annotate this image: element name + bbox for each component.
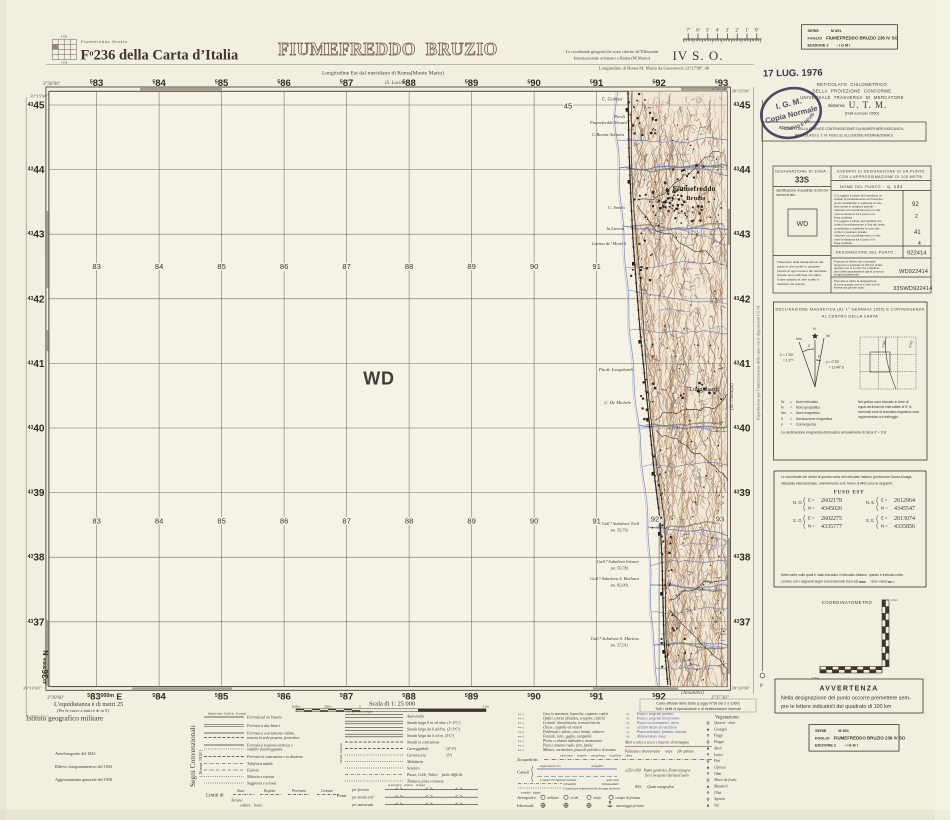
svg-text:84: 84 (155, 517, 163, 526)
svg-text:Le coordinate geografiche sono: Le coordinate geografiche sono riferite … (566, 49, 659, 54)
svg-text:linea suddetta :: linea suddetta : (834, 241, 854, 245)
svg-text:Rilievo fotogrammetrico del 19: Rilievo fotogrammetrico del 1943 (55, 764, 112, 769)
svg-text:Idroscali:: Idroscali: (517, 803, 534, 808)
svg-text:Nord geografico: Nord geografico (796, 406, 820, 410)
svg-text:E =: E = (881, 516, 888, 521)
svg-text:FIUMEFREDDO BRUZIO: FIUMEFREDDO BRUZIO (278, 39, 498, 59)
svg-text:ed altro mezzo di estrazione: ed altro mezzo di estrazione (637, 726, 678, 730)
svg-text:Alberi da frutto: Alberi da frutto (713, 778, 737, 782)
svg-text:FUSO EST: FUSO EST (834, 491, 864, 496)
svg-text:Nel grafico sono tracciate le: Nel grafico sono tracciate le linee di (858, 400, 909, 404)
svg-text:89: 89 (467, 517, 475, 526)
svg-text:=: = (790, 417, 792, 421)
svg-text:1 Km: 1 Km (812, 676, 820, 680)
svg-text:3°37′30″: 3°37′30″ (712, 87, 731, 92)
svg-text:rotabile fiancheggiante: rotabile fiancheggiante (247, 748, 283, 752)
svg-text:Condutture importanti di energ: Condutture importanti di energia elettri… (563, 787, 620, 791)
svg-text:inequivocabilmente :: inequivocabilmente : (834, 273, 861, 277)
svg-text:91: 91 (592, 262, 600, 271)
svg-text:586: 586 (277, 692, 290, 703)
svg-text:Muri a calce a secco e macerie: Muri a calce a secco e macerie di montag… (624, 741, 689, 745)
svg-text:γ = 0°39′: γ = 0°39′ (826, 360, 840, 364)
svg-text:33S: 33S (795, 176, 810, 185)
svg-text:=: = (790, 422, 792, 426)
svg-text:(Per le curve a tratti è di m: (Per le curve a tratti è di m 5) (57, 708, 109, 713)
svg-text:Abeti: Abeti (713, 746, 722, 750)
svg-text:AL CENTRO DELLA CARTA: AL CENTRO DELLA CARTA (822, 315, 879, 319)
svg-text:▪▫▪ ◇: ▪▫▪ ◇ (518, 726, 525, 730)
svg-text:Terreno:: Terreno: (231, 799, 243, 803)
svg-text:Le coordinate dei vertici di q: Le coordinate dei vertici di questa cart… (781, 475, 912, 479)
svg-text:FOGLIOFIUMEFREDDO BRUZIO 236 I: FOGLIOFIUMEFREDDO BRUZIO 236 IV SO (815, 736, 906, 741)
svg-text:83: 83 (92, 262, 100, 271)
svg-text:87: 87 (342, 517, 350, 526)
svg-text:δ: δ (781, 417, 783, 421)
svg-text:misto: misto (594, 796, 602, 800)
svg-text:Pta di: Pta di (613, 114, 625, 119)
svg-text:(Amantea): (Amantea) (681, 689, 704, 696)
svg-text:592: 592 (652, 78, 665, 89)
svg-text:○◎: ○◎ (625, 721, 630, 725)
svg-text:Trascurare nella designazione: Trascurare nella designazione del (777, 260, 824, 264)
svg-text:590: 590 (527, 692, 540, 703)
svg-text:▪▫▪ ◇: ▪▫▪ ◇ (518, 721, 525, 725)
svg-text:Limiti di: Limiti di (206, 794, 224, 799)
svg-text:88: 88 (405, 517, 413, 526)
svg-text:civile: civile (571, 796, 579, 800)
svg-text:lometri di lato :: lometri di lato : (776, 193, 797, 197)
svg-text:587: 587 (340, 692, 353, 703)
svg-text:589: 589 (465, 692, 478, 703)
svg-text:▪▫▪ ◇: ▪▫▪ ◇ (518, 735, 525, 739)
svg-text:39°15′00″: 39°15′00″ (30, 94, 49, 99)
svg-text:4335856: 4335856 (894, 524, 915, 530)
svg-text:C. Snello: C. Snello (608, 205, 626, 210)
svg-text:Strada larga 8 m. ed oltre (1ª: Strada larga 8 m. ed oltre (1ª-2ªCª) (407, 721, 461, 725)
svg-text:Declinazione magnetica: Declinazione magnetica (796, 417, 832, 421)
svg-text:585: 585 (215, 78, 229, 89)
svg-text:Olivi: Olivi (714, 791, 721, 795)
svg-text:Riproduzione per l’autorizzazi: Riproduzione per l’autorizzazione della … (756, 305, 761, 420)
svg-text:E =: E = (808, 498, 815, 503)
svg-text:Sentiero: Sentiero (407, 767, 420, 771)
svg-text:4′: 4′ (716, 29, 720, 34)
svg-text:Stato: Stato (237, 789, 245, 793)
svg-text:39°10′00″: 39°10′00″ (732, 686, 751, 691)
svg-text:Slittovia e rotovia: Slittovia e rotovia (247, 775, 274, 779)
svg-text:=: = (790, 411, 792, 415)
svg-text:Canali: Canali (517, 770, 530, 775)
svg-text:Pozzo e sorgente perenne: Pozzo e sorgente perenne (636, 712, 674, 716)
svg-text:2′: 2′ (735, 29, 739, 34)
svg-text:per strada ord.ª: per strada ord.ª (351, 796, 376, 800)
svg-text:C. De Michele: C. De Michele (604, 400, 631, 405)
svg-text:○◎: ○◎ (625, 730, 630, 734)
svg-text:1000m: 1000m (292, 705, 301, 709)
svg-text:Vegetazione:: Vegetazione: (715, 716, 740, 721)
svg-text:Scala di 1: 25 000: Scala di 1: 25 000 (369, 701, 415, 708)
svg-text:4335777: 4335777 (821, 524, 842, 530)
svg-text:92: 92 (651, 515, 659, 524)
svg-text:85: 85 (217, 262, 225, 271)
svg-text:Nm: Nm (781, 411, 786, 415)
svg-text:○◎: ○◎ (625, 712, 630, 716)
svg-text:90: 90 (530, 262, 538, 271)
svg-text:Pozzo e sorgente non perenne: Pozzo e sorgente non perenne (636, 717, 680, 721)
svg-text:punto le cifre scritte in cara: punto le cifre scritte in carattere (777, 264, 820, 268)
svg-text:Regione: Regione (263, 789, 276, 793)
svg-text:Usare soltanto le cifre scritt: Usare soltanto le cifre scritte in (777, 278, 820, 282)
svg-text:86: 86 (280, 517, 288, 526)
svg-text:500m: 500m (325, 705, 333, 709)
svg-text:N. O.: N. O. (793, 500, 803, 505)
svg-text:▪▫▪ ◇: ▪▫▪ ◇ (518, 712, 525, 716)
svg-text:ellissoide internazionale, ori: ellissoide internazionale, orientamento … (781, 482, 893, 486)
svg-text:C. Golosa: C. Golosa (602, 98, 623, 103)
svg-text:egual declinazione intervallat: egual declinazione intervallate di 5′; l… (858, 405, 912, 409)
svg-text:Palizzata e sbarramentosiepefi: Palizzata e sbarramentosiepefilo spinato (624, 750, 694, 754)
svg-text:E =: E = (881, 498, 888, 503)
svg-text:Aeroporti:: Aeroporti: (517, 795, 536, 800)
svg-text:la Lavina: la Lavina (607, 226, 625, 231)
svg-text:33SWD922414: 33SWD922414 (893, 286, 933, 292)
svg-text:Nord magnetico: Nord magnetico (796, 411, 820, 415)
svg-text:Fiumefreddo Bruzio: Fiumefreddo Bruzio (81, 39, 128, 44)
svg-text:41: 41 (914, 230, 921, 236)
svg-text:Ponti: Ponti (337, 793, 347, 798)
svg-text:86: 86 (280, 262, 288, 271)
svg-text:585: 585 (215, 692, 229, 703)
svg-text:3°37′30″: 3°37′30″ (711, 696, 730, 701)
svg-text:Nella designazione del punt: Nella designazione del punto occorre pre… (781, 696, 911, 702)
svg-text:3°30′00′: 3°30′00′ (43, 82, 61, 87)
svg-text:Castagni: Castagni (714, 727, 727, 731)
svg-text:39°15′00″: 39°15′00″ (732, 89, 751, 94)
svg-text:1 Km: 1 Km (891, 598, 899, 602)
svg-text:2613074: 2613074 (894, 516, 915, 522)
svg-text:Gall.ª Subalvea S. Barbara: Gall.ª Subalvea S. Barbara (590, 576, 640, 581)
svg-text:Strada in costruzione: Strada in costruzione (407, 741, 440, 745)
svg-text:N =: N = (808, 506, 815, 511)
svg-text:6′: 6′ (696, 29, 700, 34)
svg-text:stessa sia già ben nota :: stessa sia già ben nota : (834, 286, 865, 290)
svg-text:cornice con i seguenti segni c: cornice con i seguenti segni convenziona… (781, 580, 894, 584)
svg-text:I TRATTI DELLA CORNICE CONTRAS: I TRATTI DELLA CORNICE CONTRASSEGNATI DA… (784, 127, 905, 131)
svg-text:Gall.ª Subalvea Torß: Gall.ª Subalvea Torß (602, 521, 640, 526)
svg-text:WD: WD (797, 221, 809, 228)
svg-text:Aggiornamento generale del 195: Aggiornamento generale del 1958 (55, 777, 112, 782)
svg-text:Queste sono utilizzate nei val: Queste sono utilizzate nei valori. (777, 273, 822, 277)
svg-text:584: 584 (152, 78, 166, 89)
svg-text:Ferrovia ad un binario: Ferrovia ad un binario (246, 716, 282, 720)
svg-text:P: P (760, 684, 763, 689)
svg-text:DELLA PROIEZIONE CONFORME: DELLA PROIEZIONE CONFORME (813, 89, 892, 94)
svg-text:Pta de Longobardi: Pta de Longobardi (598, 367, 634, 372)
svg-text:Longobardi: Longobardi (689, 386, 719, 393)
svg-text:Mandorli: Mandorli (713, 785, 728, 789)
svg-text:per autostrada: per autostrada (351, 803, 373, 807)
svg-text:U. T. M.: U. T. M. (849, 100, 887, 110)
svg-text:WD922414: WD922414 (899, 269, 929, 275)
svg-text:eventuali zone di anomalia mag: eventuali zone di anomalia magnetica son… (858, 410, 919, 414)
svg-text:Teleferica stabile: Teleferica stabile (247, 762, 273, 766)
svg-text:Agrumi: Agrumi (713, 797, 725, 801)
svg-text:Strada larga da 4 a 6 m. (3ªCª: Strada larga da 4 a 6 m. (3ªCª) (407, 734, 455, 738)
svg-text:N =: N = (808, 524, 815, 529)
svg-text:identificazione di quadrato di: identificazione di quadrato di 100 chi- (776, 189, 829, 193)
svg-text:591: 591 (590, 78, 604, 89)
svg-text:Nelle carte sulle quali è stat: Nelle carte sulle quali è stato tracciat… (781, 573, 903, 577)
svg-text:90: 90 (530, 517, 538, 526)
svg-text:4: 4 (918, 241, 921, 247)
svg-text:583: 583 (90, 78, 103, 89)
svg-text:ESEMPIO DI DESIGNAZIONE DI UN: ESEMPIO DI DESIGNAZIONE DI UN PUNTO (837, 170, 924, 174)
svg-text:93: 93 (716, 515, 724, 524)
svg-text:922414: 922414 (907, 251, 927, 257)
svg-text:Autostrada: Autostrada (406, 715, 424, 719)
svg-text:83: 83 (92, 517, 100, 526)
svg-text:○◎: ○◎ (625, 735, 630, 739)
svg-text:2: 2 (915, 214, 918, 220)
svg-text:Viti: Viti (714, 804, 719, 808)
svg-text:Pioppi: Pioppi (713, 740, 724, 744)
svg-text:CON L’APPROSSIMAZIONE DI 100 M: CON L’APPROSSIMAZIONE DI 100 METRI (839, 175, 923, 179)
svg-text:in muratura di ferro di: in muratura di ferro di legno (388, 784, 426, 787)
svg-text:45: 45 (564, 102, 572, 111)
svg-text:Fiumefreddo: Fiumefreddo (672, 184, 715, 193)
svg-text:(Dati europei 1950): (Dati europei 1950) (845, 111, 880, 116)
svg-text:84: 84 (155, 262, 163, 271)
svg-text:DESIGNAZIONE DI ZONA :: DESIGNAZIONE DI ZONA : (775, 170, 828, 174)
svg-text:3′: 3′ (726, 29, 730, 34)
svg-text:E =: E = (808, 516, 815, 521)
svg-text:pre le lettere indicatric̀i: pre le lettere indicatric̀i del quadrato… (781, 704, 892, 710)
svg-text:Gall.ª Subalvea Irlance: Gall.ª Subalvea Irlance (597, 559, 639, 564)
svg-text:4345026: 4345026 (821, 506, 842, 512)
svg-text:γ: γ (781, 422, 783, 426)
svg-text:=: = (790, 406, 792, 410)
svg-text:▪▫▪ ◇: ▪▫▪ ◇ (518, 739, 525, 743)
svg-text:Nord reticolato: Nord reticolato (796, 400, 818, 404)
svg-text:= 11′44″,6: = 11′44″,6 (826, 366, 844, 370)
svg-text:N. E.: N. E. (866, 500, 875, 505)
svg-text:1′: 1′ (745, 29, 749, 34)
svg-text:2602275: 2602275 (821, 516, 842, 522)
svg-text:Faggi: Faggi (713, 734, 723, 738)
svg-text:▪▫▪ ◇: ▪▫▪ ◇ (518, 717, 525, 721)
svg-text:COORDINATOMETRO: COORDINATOMETRO (822, 600, 873, 605)
svg-text:(M. Cocuzzo): (M. Cocuzzo) (730, 383, 735, 410)
svg-text:Aerofotografie del 1943: Aerofotografie del 1943 (55, 751, 95, 756)
svg-text:92: 92 (912, 202, 919, 208)
svg-text:88: 88 (405, 262, 413, 271)
svg-text:Ferrovia a due binari: Ferrovia a due binari (246, 724, 280, 728)
svg-text:S. E.: S. E. (866, 518, 875, 523)
svg-text:2602178: 2602178 (821, 498, 842, 504)
svg-text:Bruzio: Bruzio (686, 195, 705, 202)
svg-text:Olmi: Olmi (714, 772, 721, 776)
svg-text:Segni Convenzionali: Segni Convenzionali (188, 725, 197, 787)
svg-text:militare: militare (548, 796, 560, 800)
svg-text:Acquedotti:: Acquedotti: (517, 757, 539, 762)
svg-text:584: 584 (152, 692, 166, 703)
svg-text:AVVERTENZA: AVVERTENZA (820, 686, 879, 693)
svg-text:▪▫▪ ◇: ▪▫▪ ◇ (518, 744, 525, 748)
svg-text:Pini: Pini (713, 759, 720, 763)
svg-text:= 1,9°ⁿⁿ: = 1,9°ⁿⁿ (780, 359, 795, 363)
svg-text:fico con quota riferita al suo: fico con quota riferita al suolo (645, 774, 689, 778)
svg-text:IV S. O.: IV S. O. (672, 48, 723, 63)
svg-text:Seggiovia e sciovia: Seggiovia e sciovia (247, 782, 276, 786)
svg-text:588: 588 (402, 78, 415, 89)
svg-text:590: 590 (527, 78, 540, 89)
svg-text:17 LUG. 1976: 17 LUG. 1976 (763, 67, 823, 79)
svg-text:591: 591 (590, 692, 604, 703)
svg-text:Quercie - olmi: Quercie - olmi (714, 721, 735, 725)
svg-text:587: 587 (340, 78, 353, 89)
svg-text:91: 91 (592, 517, 600, 526)
svg-text:La declinazione magnetica d: La declinazione magnetica diminuisce ann… (781, 431, 886, 435)
svg-text:Provincia: Provincia (291, 789, 306, 793)
svg-text:Sistema: Sistema (828, 103, 845, 108)
svg-text:2612964: 2612964 (894, 498, 915, 504)
svg-text:85: 85 (217, 517, 225, 526)
svg-text:Fo236 della Carta d’Italia: Fo236 della Carta d’Italia (81, 48, 239, 64)
svg-text:Tutti i diritti di riproduzion: Tutti i diritti di riproduzione e di rie… (655, 707, 741, 711)
svg-text:▪▫▪ ◇: ▪▫▪ ◇ (518, 748, 525, 752)
svg-text:Istituto geografico militare: Istituto geografico militare (26, 715, 103, 723)
svg-text:Lavina de’ Morelli: Lavina de’ Morelli (591, 241, 627, 246)
svg-text:C.Buona Antonia: C.Buona Antonia (592, 132, 625, 137)
svg-text:589: 589 (465, 78, 478, 89)
svg-text:39°10′00″: 39°10′00″ (23, 686, 42, 691)
svg-text:( Norme 1958 ): ( Norme 1958 ) (198, 749, 203, 777)
svg-text:Massicciata Galleria Fermata: Massicciata Galleria Fermata (207, 712, 246, 716)
svg-text:N =: N = (881, 506, 888, 511)
svg-text:Mulattiera: Mulattiera (406, 760, 423, 764)
svg-text:1 Km: 1 Km (483, 705, 490, 709)
svg-text:con muri di sostegno: con muri di sostegno (346, 710, 373, 714)
svg-text:N: N (813, 327, 816, 331)
svg-text:Ferrovia in costruzione e in d: Ferrovia in costruzione e in disarmo (246, 755, 303, 759)
svg-text:campo di fortuna: campo di fortuna (616, 796, 641, 800)
svg-text:Strada larga da 6 ad 8 m. (2ª-: Strada larga da 6 ad 8 m. (2ª-3ªCª) (407, 728, 461, 732)
svg-text:Internazionale orientato a Rom: Internazionale orientato a Roma (M.Mario… (574, 56, 651, 61)
svg-text:N =: N = (881, 524, 888, 529)
svg-text:○◎: ○◎ (625, 726, 630, 730)
svg-text:Longitudine Est dal meridiano: Longitudine Est dal meridiano di Roma(Mo… (322, 70, 444, 77)
svg-text:δ: δ (808, 344, 810, 348)
svg-text:Carta ufficiale dello Stato (L: Carta ufficiale dello Stato (Legge N°68 … (656, 702, 739, 706)
svg-text:DESIGNAZIONE DEL PUNTO :: DESIGNAZIONE DEL PUNTO : (836, 251, 896, 255)
svg-text:γ: γ (818, 354, 820, 358)
svg-text:4345547: 4345547 (894, 506, 915, 512)
svg-text:RETICOLATO U. T. M. FUSO 33, E: RETICOLATO U. T. M. FUSO 33, ELLISSOIDE … (795, 134, 894, 138)
svg-text:7′: 7′ (686, 29, 690, 34)
svg-text:89: 89 (467, 262, 475, 271)
svg-text:=: = (790, 400, 792, 404)
svg-text:87: 87 (342, 262, 350, 271)
svg-text:δ = 1°50′: δ = 1°50′ (780, 353, 794, 357)
svg-text:0′: 0′ (755, 29, 759, 34)
svg-text:L’equidistanza è di metri 25: L’equidistanza è di metri 25 (54, 701, 123, 708)
svg-text:Nm: Nm (796, 337, 802, 341)
svg-text:○◎: ○◎ (625, 717, 630, 721)
svg-text:4.028: 4.028 (61, 35, 68, 39)
svg-text:Comune: Comune (321, 789, 333, 793)
svg-text:ancoraggio privato: ancoraggio privato (616, 804, 644, 808)
svg-text:Fiumefreddo Bruzio: Fiumefreddo Bruzio (589, 120, 628, 125)
svg-text:Φ16Quota topografica: Φ16Quota topografica (635, 785, 674, 789)
svg-text:carattere più grande.: carattere più grande. (777, 282, 806, 286)
svg-text:NOME DEL PUNTO :q. 131: NOME DEL PUNTO :q. 131 (840, 184, 903, 189)
svg-text:Gall.ª Subalvea S. Martino: Gall.ª Subalvea S. Martino (591, 636, 640, 641)
svg-text:rappresentate con tratteggio.: rappresentate con tratteggio. (858, 415, 899, 419)
svg-text:Funivia: Funivia (246, 769, 259, 773)
svg-text:sotterraneo scoperto: sotterraneo scoperto sopraelevato in gal… (560, 755, 633, 758)
svg-text:FOGLIOFIUMEFREDDO BRUZIO 236 I: FOGLIOFIUMEFREDDO BRUZIO 236 IV SO (808, 36, 899, 41)
svg-text:WD: WD (363, 369, 395, 389)
svg-text:RETICOLATO CHILOMETRICO: RETICOLATO CHILOMETRICO (817, 82, 888, 87)
svg-text:F.236: F.236 (61, 61, 68, 65)
svg-text:S. O.: S. O. (793, 518, 803, 523)
svg-text:DECLINAZIONE MAGNETICA (AL 1: DECLINAZIONE MAGNETICA (AL 1° GENNAIO 19… (775, 308, 924, 312)
svg-text:per ferrovia: per ferrovia (351, 788, 369, 792)
svg-text:Convergenza: Convergenza (796, 422, 816, 426)
svg-text:Strade rotabili: Strade rotabili (339, 743, 343, 763)
svg-text:coltura bosco: coltura bosco (240, 804, 263, 808)
svg-text:▪▫▪ ◇: ▪▫▪ ◇ (518, 730, 525, 734)
svg-text:5′: 5′ (706, 29, 710, 34)
svg-text:586: 586 (277, 78, 290, 89)
svg-text:piccolo di ogni numero del ret: piccolo di ogni numero del reticolato. (777, 269, 827, 273)
svg-text:Cipressi: Cipressi (714, 766, 726, 770)
svg-text:Larici: Larici (713, 753, 723, 757)
